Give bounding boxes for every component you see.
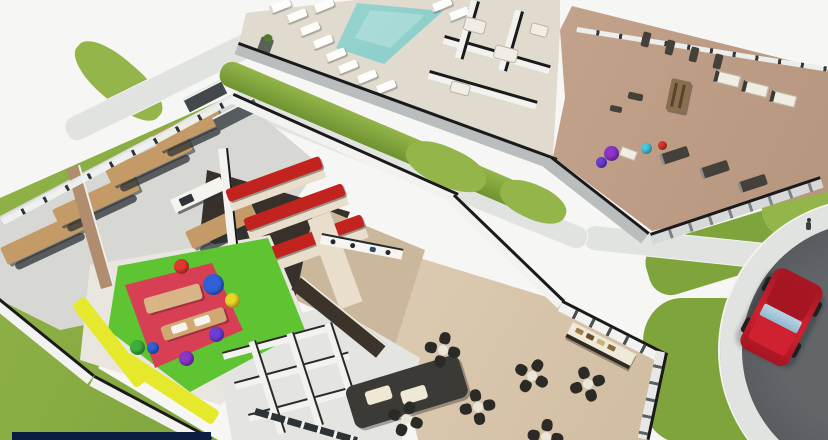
sofa-cushion (364, 385, 393, 406)
buffet-tray (607, 344, 616, 352)
watermark-bar (12, 432, 211, 440)
chair-cluster (457, 386, 499, 428)
site-plan-render (0, 0, 828, 440)
play-pillow (170, 322, 188, 335)
exercise-ball-violet (596, 157, 607, 168)
play-ball-red (174, 259, 189, 274)
exercise-ball-red (658, 141, 667, 150)
lounge-table (540, 431, 551, 440)
lounge-table (472, 401, 484, 413)
buffet-tray (585, 333, 594, 341)
play-ball-violet (209, 327, 224, 342)
play-ball-green (130, 340, 145, 355)
buffet-tray (575, 327, 584, 335)
exercise-ball-cyan (641, 143, 652, 154)
chair-cluster (422, 329, 465, 372)
play-ball-yellow (225, 293, 240, 308)
play-ball-blue (203, 274, 224, 295)
buffet-tray (596, 338, 605, 346)
play-ball-blue-small (147, 342, 159, 354)
play-ball-purple (179, 351, 194, 366)
person-figure (806, 218, 811, 230)
play-pillow (193, 314, 211, 327)
printer-on-sideboard (179, 193, 195, 206)
chair-cluster (526, 417, 567, 440)
